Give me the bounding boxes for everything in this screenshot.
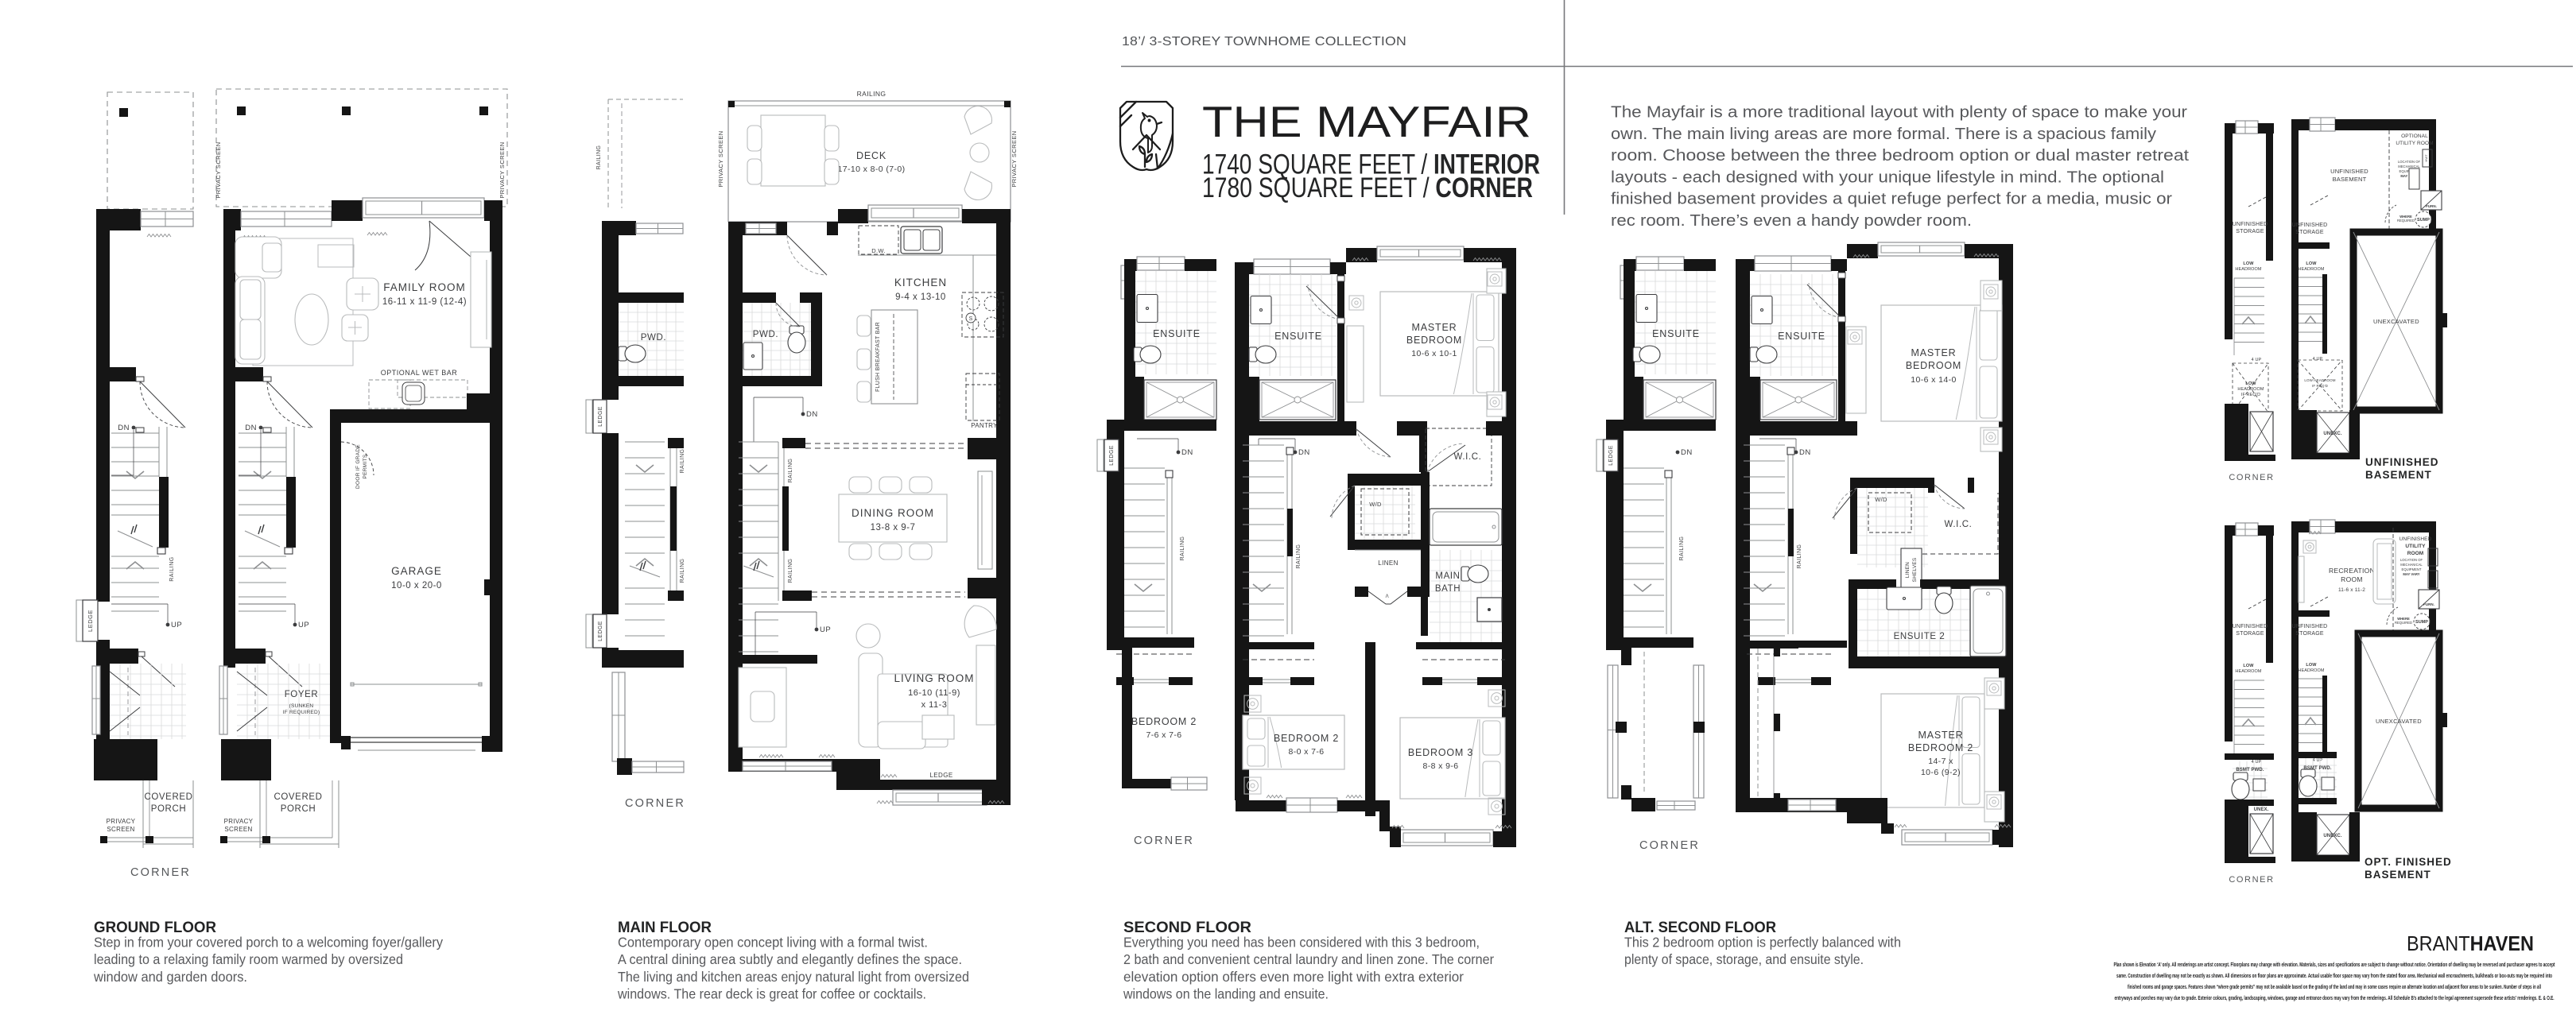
svg-text:IF REQUIRED): IF REQUIRED) <box>283 710 320 715</box>
svg-text:PRIVACY: PRIVACY <box>224 818 254 825</box>
svg-text:RAILING: RAILING <box>788 559 793 583</box>
svg-text:IF REQ’D: IF REQ’D <box>2312 384 2329 388</box>
svg-text:This 2 bedroom option is perfe: This 2 bedroom option is perfectly balan… <box>1624 935 1901 951</box>
svg-text:STORAGE: STORAGE <box>2236 631 2264 637</box>
svg-text:same. Construction of dwelling: same. Construction of dwelling may not b… <box>2116 972 2552 979</box>
svg-text:8-0 x 7-6: 8-0 x 7-6 <box>1288 747 1324 757</box>
svg-text:DN: DN <box>806 410 818 419</box>
svg-text:DINING ROOM: DINING ROOM <box>852 507 934 519</box>
svg-text:HEADROOM: HEADROOM <box>2298 267 2325 272</box>
svg-text:LIVING ROOM: LIVING ROOM <box>894 672 974 684</box>
svg-text:Step in from your covered porc: Step in from your covered porch to a wel… <box>94 935 443 951</box>
svg-text:UNEXC.: UNEXC. <box>2323 432 2342 436</box>
svg-text:OPTIONAL: OPTIONAL <box>2401 134 2428 139</box>
svg-text:SCREEN: SCREEN <box>107 826 134 833</box>
svg-text:14-7 x: 14-7 x <box>1928 757 1953 766</box>
svg-text:room. Choose between the three: room. Choose between the three bedroom o… <box>1611 147 2190 165</box>
svg-text:leading to a relaxing family r: leading to a relaxing family room warmed… <box>94 951 403 967</box>
svg-text:LOW: LOW <box>2245 381 2256 386</box>
svg-text:ENSUITE: ENSUITE <box>1652 328 1700 339</box>
svg-text:BEDROOM 2: BEDROOM 2 <box>1908 742 1973 753</box>
svg-text:window and garden doors.: window and garden doors. <box>93 969 247 985</box>
svg-text:HEADROOM: HEADROOM <box>2235 669 2262 674</box>
svg-text:windows on the landing and ens: windows on the landing and ensuite. <box>1123 986 1329 1002</box>
svg-text:LINEN: LINEN <box>1378 560 1399 567</box>
svg-text:BEDROOM: BEDROOM <box>1906 360 1961 371</box>
svg-text:LOW: LOW <box>2306 261 2317 266</box>
svg-text:ROOM: ROOM <box>2407 551 2424 556</box>
svg-text:FLUSH BREAKFAST BAR: FLUSH BREAKFAST BAR <box>875 322 881 392</box>
svg-text:OPT. FINISHED: OPT. FINISHED <box>2365 856 2452 868</box>
svg-text:W/D: W/D <box>1369 501 1382 508</box>
svg-text:HEADROOM: HEADROOM <box>2237 387 2264 392</box>
svg-text:UNFINISHED: UNFINISHED <box>2292 624 2328 629</box>
svg-text:BRANTHAVEN: BRANTHAVEN <box>2407 931 2534 955</box>
svg-text:LOW: LOW <box>2243 261 2254 266</box>
svg-text:LOW HEADROOM: LOW HEADROOM <box>2304 378 2335 382</box>
svg-text:UNFINISHED: UNFINISHED <box>2292 223 2328 228</box>
svg-text:IF REQ’D: IF REQ’D <box>2241 393 2260 397</box>
svg-text:FURN.: FURN. <box>2423 602 2434 606</box>
svg-text:BEDROOM 2: BEDROOM 2 <box>1274 733 1339 744</box>
svg-text:MAIN: MAIN <box>1435 571 1460 581</box>
svg-text:W.I.C.: W.I.C. <box>1945 520 1973 529</box>
svg-text:ROOM: ROOM <box>2341 575 2363 583</box>
svg-text:4 UP: 4 UP <box>2313 758 2323 763</box>
svg-text:LEDGE: LEDGE <box>1109 445 1115 466</box>
svg-text:(SUNKEN: (SUNKEN <box>289 703 314 709</box>
svg-text:UNFINISHED: UNFINISHED <box>2330 168 2368 175</box>
svg-text:EQUIPMENT: EQUIPMENT <box>2402 567 2422 571</box>
svg-text:SUMP: SUMP <box>2415 620 2428 625</box>
svg-text:entryways and porches may vary: entryways and porches may vary due to gr… <box>2115 994 2555 1001</box>
svg-text:ENSUITE: ENSUITE <box>1274 331 1322 342</box>
svg-text:BEDROOM 2: BEDROOM 2 <box>1131 716 1197 727</box>
svg-text:CORNER: CORNER <box>130 866 191 879</box>
svg-text:W/D: W/D <box>1875 496 1887 503</box>
svg-text:layouts - each designed with y: layouts - each designed with your unique… <box>1611 168 2164 186</box>
svg-text:UNEX.: UNEX. <box>2254 807 2269 812</box>
svg-text:UNFINISHED: UNFINISHED <box>2233 222 2268 227</box>
svg-text:SHELVES: SHELVES <box>1912 557 1918 582</box>
svg-text:A central dining area subtly a: A central dining area subtly and elegant… <box>618 951 962 967</box>
svg-text:Λ: Λ <box>1386 594 1390 599</box>
svg-text:MECHANICAL: MECHANICAL <box>2398 165 2420 168</box>
svg-text:UP: UP <box>298 621 309 629</box>
svg-text:10-6 (9-2): 10-6 (9-2) <box>1921 768 1961 777</box>
svg-text:PWD.: PWD. <box>641 333 666 343</box>
svg-text:UNFINISHED: UNFINISHED <box>2399 536 2432 542</box>
svg-text:PRIVACY SCREEN: PRIVACY SCREEN <box>499 141 506 198</box>
svg-text:LINEN: LINEN <box>1905 562 1911 578</box>
svg-text:RAILING: RAILING <box>596 145 602 170</box>
svg-text:2 bath and convenient central: 2 bath and convenient central laundry an… <box>1123 951 1494 967</box>
svg-text:COVERED: COVERED <box>274 792 322 802</box>
svg-text:MASTER: MASTER <box>1412 322 1457 333</box>
svg-text:UNEXCAVATED: UNEXCAVATED <box>2376 718 2422 725</box>
svg-text:PORCH: PORCH <box>151 804 187 814</box>
svg-text:BEDROOM 3: BEDROOM 3 <box>1408 747 1473 758</box>
svg-text:LOCATION OF: LOCATION OF <box>2400 558 2423 562</box>
svg-text:plenty of space, storage, and: plenty of space, storage, and ensuite st… <box>1624 951 1864 967</box>
svg-text:Contemporary open concept livi: Contemporary open concept living with a … <box>618 935 928 951</box>
svg-text:BASEMENT: BASEMENT <box>2333 176 2367 183</box>
svg-text:PRIVACY SCREEN: PRIVACY SCREEN <box>1011 130 1018 187</box>
svg-text:ENSUITE 2: ENSUITE 2 <box>1894 632 1946 641</box>
svg-text:finished basement provides a q: finished basement provides a quiet refug… <box>1611 191 2172 208</box>
svg-text:DN: DN <box>118 424 130 432</box>
svg-text:10-0 x 20-0: 10-0 x 20-0 <box>391 581 442 591</box>
svg-text:KITCHEN: KITCHEN <box>894 277 947 288</box>
svg-text:LOW: LOW <box>2306 663 2317 668</box>
svg-text:HEADROOM: HEADROOM <box>2235 267 2262 272</box>
svg-text:UNEXC.: UNEXC. <box>2323 834 2342 838</box>
svg-text:LEDGE: LEDGE <box>598 621 603 641</box>
svg-text:PORCH: PORCH <box>281 804 316 814</box>
svg-text:10-6 x 10-1: 10-6 x 10-1 <box>1411 349 1457 358</box>
svg-text:FURN.: FURN. <box>2426 204 2437 208</box>
svg-text:Everything you need has been c: Everything you need has been considered … <box>1123 935 1480 951</box>
svg-text:LEDGE: LEDGE <box>87 610 94 632</box>
svg-text:HEADROOM: HEADROOM <box>2298 668 2325 673</box>
svg-text:LOW: LOW <box>2243 664 2254 668</box>
svg-text:COVERED: COVERED <box>144 792 192 802</box>
svg-text:LEDGE: LEDGE <box>598 406 603 427</box>
svg-text:finished rooms and garage spac: finished rooms and garage spaces. Featur… <box>2128 983 2541 990</box>
svg-text:SUMP: SUMP <box>2417 218 2430 223</box>
svg-text:UTILITY: UTILITY <box>2405 544 2426 549</box>
svg-text:17-10 x 8-0 (7-0): 17-10 x 8-0 (7-0) <box>837 165 905 174</box>
svg-text:9-4 x 13-10: 9-4 x 13-10 <box>895 292 946 302</box>
svg-text:RAILING: RAILING <box>1296 544 1302 569</box>
svg-text:10-6 x 14-0: 10-6 x 14-0 <box>1911 375 1957 385</box>
svg-text:UNFINISHED: UNFINISHED <box>2365 456 2439 468</box>
svg-text:CORNER: CORNER <box>1134 834 1194 847</box>
svg-text:RAILING: RAILING <box>1180 536 1185 561</box>
svg-text:RAILING: RAILING <box>680 559 685 583</box>
svg-text:SCREEN: SCREEN <box>224 826 252 833</box>
svg-text:HWT: HWT <box>2424 154 2428 162</box>
svg-text:PWD.: PWD. <box>753 330 778 339</box>
svg-text:FOYER: FOYER <box>285 690 319 699</box>
svg-text:CORNER: CORNER <box>625 797 685 810</box>
svg-text:LEDGE: LEDGE <box>1608 445 1614 466</box>
svg-text:RAILING: RAILING <box>1797 544 1802 569</box>
svg-text:FAMILY ROOM: FAMILY ROOM <box>383 281 466 293</box>
svg-text:RAILING: RAILING <box>857 90 886 98</box>
svg-text:THE MAYFAIR: THE MAYFAIR <box>1202 97 1531 146</box>
svg-text:rec room. There’s even a handy: rec room. There’s even a handy powder ro… <box>1611 212 1972 230</box>
svg-text:PANTRY: PANTRY <box>971 422 998 429</box>
svg-text:DN: DN <box>1181 448 1193 457</box>
svg-text:UP: UP <box>820 625 831 634</box>
svg-text:REQUIRED: REQUIRED <box>2395 621 2412 625</box>
svg-text:4 UP: 4 UP <box>2252 358 2262 362</box>
svg-text:elevation option offers even m: elevation option offers even more light … <box>1123 969 1464 985</box>
svg-text:BASEMENT: BASEMENT <box>2365 469 2432 481</box>
svg-text:1780 SQUARE FEET / CORNER: 1780 SQUARE FEET / CORNER <box>1202 172 1533 203</box>
svg-text:UNFINISHED: UNFINISHED <box>2233 624 2268 629</box>
svg-text:BEDROOM: BEDROOM <box>1406 335 1462 346</box>
svg-text:DN: DN <box>245 424 257 432</box>
svg-text:8-8 x 9-6: 8-8 x 9-6 <box>1422 761 1458 771</box>
svg-text:11-6 x 11-2: 11-6 x 11-2 <box>2338 587 2365 593</box>
svg-text:PRIVACY SCREEN: PRIVACY SCREEN <box>215 141 222 198</box>
svg-text:own. The main living areas are: own. The main living areas are more form… <box>1611 126 2156 143</box>
svg-text:MASTER: MASTER <box>1918 730 1964 741</box>
svg-text:RAILING: RAILING <box>1679 536 1685 561</box>
svg-text:4 UP: 4 UP <box>2252 760 2262 765</box>
svg-text:PRIVACY SCREEN: PRIVACY SCREEN <box>717 130 724 187</box>
svg-text:UTILITY ROOM: UTILITY ROOM <box>2396 141 2433 146</box>
svg-text:Plan shown is Elevation ‘A’ on: Plan shown is Elevation ‘A’ only. All re… <box>2114 961 2555 968</box>
svg-text:OPTIONAL WET BAR: OPTIONAL WET BAR <box>381 369 458 377</box>
svg-text:windows. The rear deck is grea: windows. The rear deck is great for coff… <box>617 986 926 1002</box>
svg-text:DECK: DECK <box>856 150 886 161</box>
svg-text:DN: DN <box>1298 448 1310 457</box>
svg-text:PERMITS: PERMITS <box>363 454 368 478</box>
svg-text:S: S <box>969 316 973 322</box>
svg-text:CORNER: CORNER <box>1639 839 1700 852</box>
svg-text:REQUIRED: REQUIRED <box>2397 219 2415 223</box>
svg-text:PRIVACY: PRIVACY <box>107 818 136 825</box>
svg-text:CORNER: CORNER <box>2229 473 2274 482</box>
svg-text:GARAGE: GARAGE <box>391 565 442 577</box>
svg-text:DN: DN <box>1799 448 1811 457</box>
svg-text:STORAGE: STORAGE <box>2295 631 2324 637</box>
svg-text:MAY VARY: MAY VARY <box>2403 572 2419 576</box>
svg-text:STORAGE: STORAGE <box>2295 230 2324 235</box>
svg-text:DN: DN <box>1681 448 1693 457</box>
svg-text:RAILING: RAILING <box>169 556 175 582</box>
svg-text:MASTER: MASTER <box>1911 347 1957 358</box>
svg-text:CORNER: CORNER <box>2229 875 2274 885</box>
svg-text:BSMT PWD.: BSMT PWD. <box>2236 768 2264 772</box>
svg-text:UNEXCAVATED: UNEXCAVATED <box>2373 318 2419 325</box>
svg-text:LEDGE: LEDGE <box>929 772 952 779</box>
svg-text:4 UP: 4 UP <box>2313 357 2323 362</box>
svg-text:UP: UP <box>171 621 182 629</box>
svg-text:LOCATION OF: LOCATION OF <box>2398 160 2421 164</box>
svg-text:RECREATION: RECREATION <box>2329 567 2375 575</box>
svg-text:16-11 x 11-9 (12-4): 16-11 x 11-9 (12-4) <box>382 297 467 307</box>
svg-text:ENSUITE: ENSUITE <box>1153 328 1201 339</box>
svg-text:RAILING: RAILING <box>680 449 685 474</box>
svg-text:The Mayfair is a more traditio: The Mayfair is a more traditional layout… <box>1611 104 2187 122</box>
svg-text:ENSUITE: ENSUITE <box>1778 331 1825 342</box>
svg-text:BATH: BATH <box>1435 584 1461 594</box>
svg-text:The living and kitchen areas e: The living and kitchen areas enjoy natur… <box>618 969 969 985</box>
svg-text:STORAGE: STORAGE <box>2236 229 2264 234</box>
svg-text:x 11-3: x 11-3 <box>921 700 948 710</box>
svg-text:13-8 x 9-7: 13-8 x 9-7 <box>871 523 916 532</box>
svg-text:7-6 x 7-6: 7-6 x 7-6 <box>1146 730 1181 740</box>
svg-text:DOOR IF GRADE: DOOR IF GRADE <box>355 444 361 489</box>
svg-text:BASEMENT: BASEMENT <box>2365 869 2431 881</box>
svg-text:D.W.: D.W. <box>871 247 885 254</box>
svg-text:18’/ 3-STOREY TOWNHOME COLLECT: 18’/ 3-STOREY TOWNHOME COLLECTION <box>1122 35 1406 48</box>
svg-text:16-10 (11-9): 16-10 (11-9) <box>908 688 960 698</box>
svg-text:MECHANICAL: MECHANICAL <box>2400 563 2423 567</box>
svg-text:W.I.C.: W.I.C. <box>1454 452 1482 462</box>
svg-text:RAILING: RAILING <box>788 459 793 483</box>
